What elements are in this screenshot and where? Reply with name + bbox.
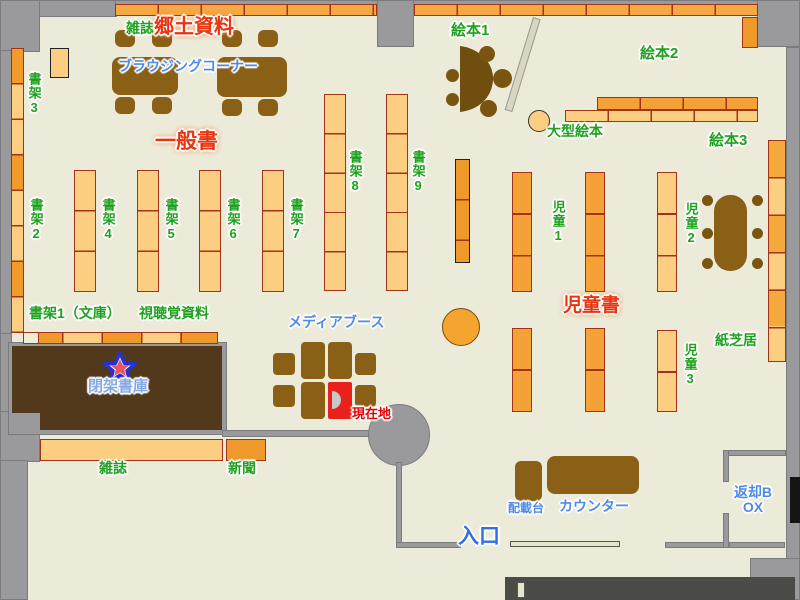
- children-low-column-b: [585, 328, 605, 412]
- closed-stacks-room-lower: [40, 405, 222, 430]
- stool: [446, 93, 459, 106]
- round-display-table: [442, 308, 480, 346]
- wall-top-right-block: [757, 0, 800, 47]
- shelf-9-column: [386, 94, 408, 291]
- wall-diagonal-partition: [505, 17, 541, 112]
- label-media-booth: メディアブース: [288, 315, 384, 330]
- shelf-bunko-row-end-cap: [23, 332, 39, 344]
- label-magazines-bottom: 雑誌: [99, 461, 127, 476]
- chair: [258, 30, 278, 47]
- shelf-magazine-display: [50, 48, 69, 78]
- shelf-narrow-dark-column: [455, 159, 470, 263]
- label-shelf5: 書架5: [164, 198, 178, 242]
- returnbox-door-opening: [790, 477, 800, 523]
- shelf-4-column: [74, 170, 96, 292]
- wall-bottom-seg2: [729, 542, 785, 548]
- shelf-6-column: [199, 170, 221, 292]
- label-kamishibai: 紙芝居: [715, 333, 757, 348]
- wall-returnbox-left-up: [723, 450, 729, 482]
- media-booth-cell: [328, 342, 352, 379]
- exterior-dark-bar: [505, 577, 795, 600]
- media-booth-cell: [301, 342, 325, 379]
- wall-bottom-seg1: [665, 542, 724, 548]
- children-low-column-a: [512, 328, 532, 412]
- label-closed-stacks: 閉架書庫: [88, 379, 148, 395]
- wall-top-left-b: [0, 0, 40, 52]
- label-general-books: 一般書: [155, 131, 218, 153]
- wall-returnbox-left-low: [723, 513, 729, 548]
- label-magazines-top: 雑誌: [126, 21, 154, 36]
- label-shelf3: 書架3: [27, 72, 41, 116]
- wall-left-bottom: [0, 460, 28, 600]
- label-picture-books3: 絵本3: [709, 133, 747, 149]
- stool: [752, 228, 763, 239]
- counter-desk: [547, 456, 639, 494]
- shelf-8-column: [324, 94, 346, 291]
- chair: [152, 97, 172, 114]
- stool: [752, 258, 763, 269]
- children1-column-b: [585, 172, 605, 292]
- label-shelf8: 書架8: [348, 150, 362, 194]
- wall-entrance-vert: [396, 462, 402, 544]
- label-counter: カウンター: [559, 499, 629, 514]
- loading-stand: [515, 461, 542, 501]
- label-av-materials: 視聴覚資料: [139, 306, 209, 321]
- chair: [115, 97, 135, 114]
- chair: [222, 99, 242, 116]
- label-picture-books2: 絵本2: [640, 46, 678, 62]
- children1-column-a: [512, 172, 532, 292]
- label-newspapers: 新聞: [228, 461, 256, 476]
- shelf-bunko-av-row: [23, 332, 218, 344]
- wall-entrance-horiz: [396, 542, 461, 548]
- stool: [702, 228, 713, 239]
- shelf-5-column: [137, 170, 159, 292]
- stool: [479, 46, 495, 62]
- shelf-divider-row-top: [597, 97, 758, 110]
- current-location-seat: [332, 391, 341, 409]
- current-location-cell: [328, 382, 352, 419]
- shelf-top-row-right: [414, 4, 758, 16]
- label-children2: 児童2: [684, 202, 698, 246]
- shelf-right-wall-column: [768, 140, 786, 362]
- chair: [258, 99, 278, 116]
- label-return-box: 返却BOX: [731, 485, 775, 514]
- children-table: [714, 195, 747, 271]
- label-shelf2: 書架2: [29, 198, 43, 242]
- library-floor-map: 雑誌 郷土資料 ブラウジングコーナー 書架3 一般書 書架2 書架4 書架5 書…: [0, 0, 800, 600]
- label-children1: 児童1: [551, 200, 565, 244]
- shelf-divider-row-bottom: [565, 110, 758, 122]
- label-childrens-books: 児童書: [563, 296, 620, 316]
- label-loading-stand: 配載台: [508, 502, 544, 515]
- children3-column: [657, 330, 677, 412]
- stool: [752, 195, 763, 206]
- label-shelf6: 書架6: [226, 198, 240, 242]
- label-children3: 児童3: [683, 343, 697, 387]
- media-booth-cell: [273, 385, 295, 407]
- wall-top-pillar: [377, 0, 414, 47]
- label-shelf9: 書架9: [411, 150, 425, 194]
- media-booth-cell: [355, 353, 376, 375]
- entrance-door-line: [510, 541, 620, 547]
- label-shelf4: 書架4: [101, 198, 115, 242]
- shelf-7-column: [262, 170, 284, 292]
- entrance-door-post: [517, 582, 525, 598]
- label-local-materials: 郷土資料: [154, 17, 234, 38]
- shelf-top-row-left: [115, 4, 377, 16]
- stool: [493, 69, 512, 88]
- stool: [446, 69, 459, 82]
- label-shelf7: 書架7: [289, 198, 303, 242]
- shelf-top-right-vertical: [742, 17, 758, 48]
- wall-returnbox-top: [727, 450, 786, 456]
- children2-column: [657, 172, 677, 292]
- label-shelf1-bunko: 書架1（文庫）: [29, 306, 121, 321]
- label-picture-books1: 絵本1: [451, 23, 489, 39]
- shelf-newspapers: [226, 439, 266, 461]
- shelf-magazines-long: [40, 439, 223, 461]
- shelf-left-wall-column: [11, 48, 24, 333]
- label-entrance: 入口: [458, 526, 500, 548]
- label-browsing-corner: ブラウジングコーナー: [118, 59, 258, 74]
- stool: [702, 195, 713, 206]
- stool: [702, 258, 713, 269]
- media-booth-cell: [301, 382, 325, 419]
- stool: [480, 100, 497, 117]
- media-booth-cell: [355, 385, 376, 407]
- label-current-location: 現在地: [352, 407, 391, 421]
- wall-to-pillar: [222, 430, 372, 437]
- label-large-picture-books: 大型絵本: [547, 124, 603, 139]
- media-booth-cell: [273, 353, 295, 375]
